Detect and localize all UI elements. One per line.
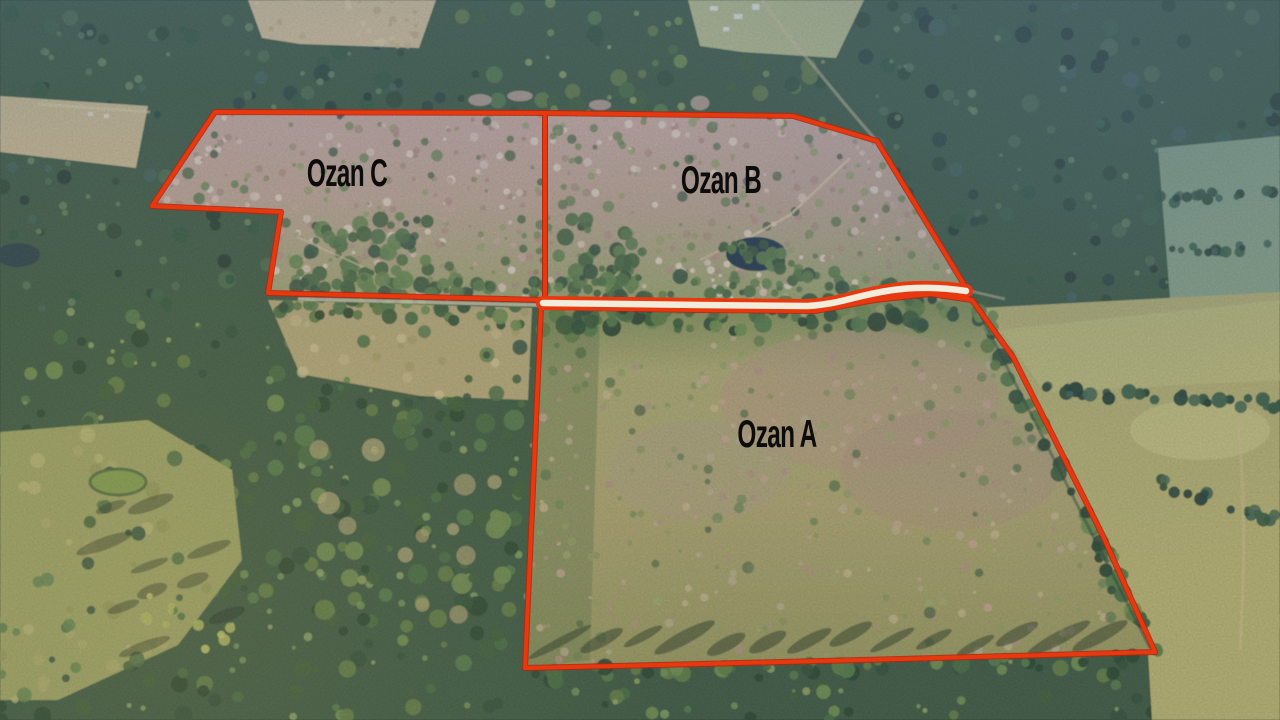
screenshot-root: Ozan C Ozan B Ozan A xyxy=(0,0,1280,720)
aerial-photo: Ozan C Ozan B Ozan A xyxy=(0,0,1280,720)
parcel-label-ozan-b: Ozan B xyxy=(681,158,761,201)
warm-light xyxy=(0,0,1280,720)
parcel-label-ozan-a: Ozan A xyxy=(737,412,817,455)
parcel-label-ozan-c: Ozan C xyxy=(307,151,387,194)
